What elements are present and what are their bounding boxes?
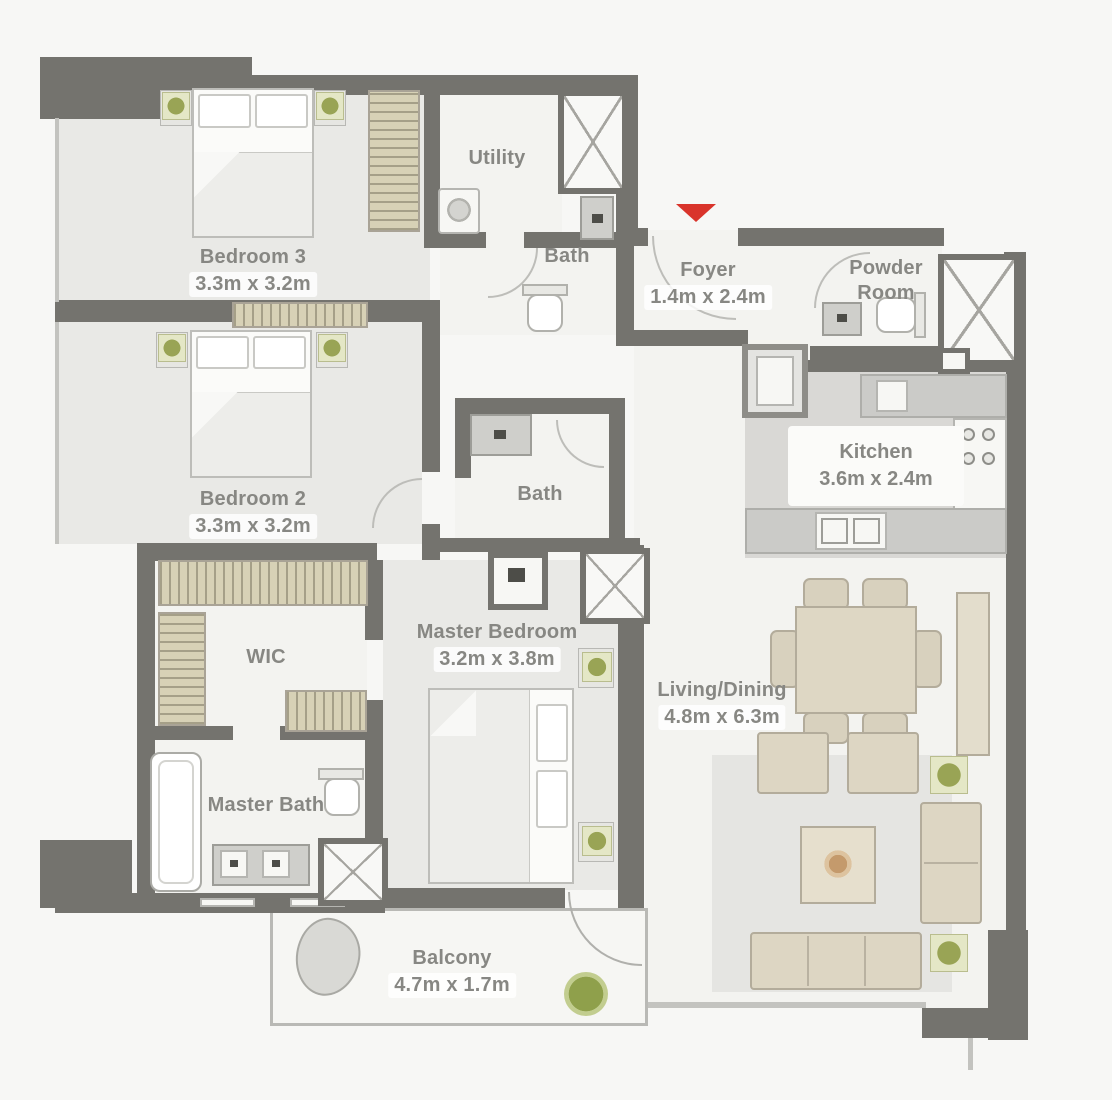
room-name: Master Bath <box>208 793 325 818</box>
table-plant-icon <box>822 848 854 880</box>
wc-cistern <box>508 568 525 582</box>
wardrobe <box>232 302 368 328</box>
kitchen-appliance <box>876 380 908 412</box>
wall <box>922 1008 1028 1038</box>
wardrobe <box>368 90 420 232</box>
wall <box>455 398 471 478</box>
wall <box>422 524 440 560</box>
wall <box>155 726 233 740</box>
armchair <box>847 732 919 794</box>
sofa-seam <box>807 936 809 986</box>
washer-drum <box>447 198 471 222</box>
sofa-seam <box>924 862 978 864</box>
kitchen-sink-basin <box>853 518 880 544</box>
room-label-bath-top: Bath <box>544 244 589 269</box>
room-name: Kitchen <box>839 439 912 466</box>
wall <box>810 346 942 360</box>
wall-thin <box>55 118 59 302</box>
room-label-bath-mid: Bath <box>517 482 562 507</box>
room-name: Master Bedroom <box>417 620 578 645</box>
blanket-fold <box>430 690 476 736</box>
plant-icon <box>930 934 968 972</box>
room-label-bedroom2: Bedroom 2 3.3m x 3.2m <box>189 487 317 539</box>
shower <box>318 838 388 906</box>
bed <box>190 330 312 478</box>
wall <box>616 330 748 346</box>
room-dims: 3.6m x 2.4m <box>819 466 932 493</box>
room-name: Bedroom 2 <box>189 487 317 512</box>
pillow <box>196 336 249 369</box>
plant-icon <box>162 92 190 120</box>
entrance-arrow-icon <box>676 204 716 222</box>
sideboard-cabinet <box>956 592 990 756</box>
bed <box>428 688 574 884</box>
room-name: Powder Room <box>826 256 946 306</box>
wall-thin <box>55 322 59 544</box>
room-dims: 3.3m x 3.2m <box>189 514 317 539</box>
hall-floor <box>634 330 745 560</box>
room-name: Utility <box>469 146 526 171</box>
room-label-living-dining: Living/Dining 4.8m x 6.3m <box>657 678 786 730</box>
room-name: Bath <box>544 244 589 269</box>
wall <box>422 300 440 472</box>
room-dims: 1.4m x 2.4m <box>644 285 772 310</box>
room-label-wic: WIC <box>246 645 285 670</box>
room-name: Balcony <box>388 946 516 971</box>
window <box>200 898 255 907</box>
bed <box>192 88 314 238</box>
sink-drain <box>272 860 280 867</box>
room-name: Foyer <box>644 258 772 283</box>
room-name: WIC <box>246 645 285 670</box>
room-dims: 4.7m x 1.7m <box>388 973 516 998</box>
room-label-master-bath: Master Bath <box>208 793 325 818</box>
duct-shaft <box>558 90 628 194</box>
sofa-3seat <box>750 932 922 990</box>
room-dims: 3.2m x 3.8m <box>433 647 561 672</box>
wall <box>137 543 377 561</box>
plant-icon <box>582 652 612 682</box>
window-line <box>648 1002 926 1008</box>
pillow <box>536 704 568 762</box>
armchair <box>757 732 829 794</box>
room-label-foyer: Foyer 1.4m x 2.4m <box>644 258 772 310</box>
room-name: Living/Dining <box>657 678 786 703</box>
plant-icon <box>582 826 612 856</box>
toilet <box>527 294 563 332</box>
blanket-fold <box>192 392 238 438</box>
hob-burner <box>982 428 995 441</box>
wall <box>1006 354 1026 954</box>
wall <box>609 398 625 558</box>
pillow <box>253 336 306 369</box>
sink-drain <box>230 860 238 867</box>
floor-plan: Bedroom 3 3.3m x 3.2m Utility Bath Foyer… <box>0 0 1112 1100</box>
room-label-utility: Utility <box>469 146 526 171</box>
blanket-fold <box>194 152 240 198</box>
plant-icon <box>930 756 968 794</box>
plant-icon <box>316 92 344 120</box>
wall <box>738 228 944 246</box>
bathtub <box>150 752 202 892</box>
room-label-bedroom3: Bedroom 3 3.3m x 3.2m <box>189 245 317 297</box>
foyer-closet-inner <box>756 356 794 406</box>
wall <box>616 235 634 335</box>
duct-niche <box>938 348 970 374</box>
room-dims: 4.8m x 6.3m <box>658 705 786 730</box>
wardrobe <box>158 612 206 726</box>
dining-table <box>795 606 917 714</box>
room-label-powder-room: Powder Room <box>826 256 946 306</box>
wall <box>424 232 486 248</box>
room-label-kitchen: Kitchen 3.6m x 2.4m <box>788 426 964 506</box>
wardrobe <box>285 690 367 732</box>
room-name: Bath <box>517 482 562 507</box>
pillow <box>536 770 568 828</box>
plant-icon <box>158 334 186 362</box>
wall <box>455 398 625 414</box>
pillow <box>198 94 251 128</box>
balcony-plant-icon <box>564 972 608 1016</box>
toilet <box>324 778 360 816</box>
wall <box>375 888 565 908</box>
sink-drain <box>592 214 603 223</box>
sofa-seam <box>864 936 866 986</box>
room-dims: 3.3m x 3.2m <box>189 272 317 297</box>
wall-thin <box>968 1038 973 1070</box>
sink-drain <box>494 430 506 439</box>
hob-burner <box>982 452 995 465</box>
duct-shaft <box>580 548 650 624</box>
room-label-balcony: Balcony 4.7m x 1.7m <box>388 946 516 998</box>
room-name: Bedroom 3 <box>189 245 317 270</box>
pillow <box>255 94 308 128</box>
kitchen-sink-basin <box>821 518 848 544</box>
wardrobe <box>158 560 368 606</box>
plant-icon <box>318 334 346 362</box>
room-label-master-bedroom: Master Bedroom 3.2m x 3.8m <box>417 620 578 672</box>
sink-drain <box>837 314 847 322</box>
